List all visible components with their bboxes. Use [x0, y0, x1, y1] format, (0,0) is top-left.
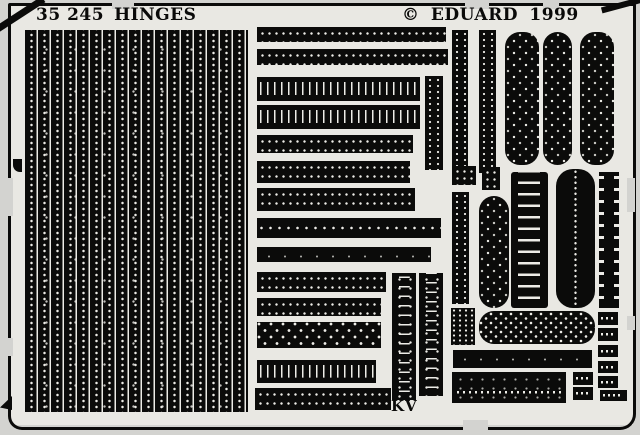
etched-part-rectdash — [598, 312, 618, 325]
etched-part-vdots — [452, 192, 469, 304]
etched-part-solid — [257, 247, 431, 262]
edge-tab-bottom-left — [0, 396, 12, 410]
etched-part-rects — [482, 167, 500, 190]
etched-part-rectdash — [598, 361, 618, 373]
sheet-name: HINGES — [114, 5, 196, 25]
etched-part-pillv — [543, 32, 572, 165]
etched-part-solid — [453, 350, 592, 368]
etched-part-ladder — [511, 172, 548, 308]
etched-part-rectdash — [573, 372, 593, 385]
etched-part-vblock — [25, 30, 248, 412]
border-gap — [627, 316, 635, 330]
etched-part-vdots — [479, 30, 496, 173]
etched-part-rectdash — [573, 387, 593, 400]
etched-part-pillvline — [556, 169, 595, 308]
etched-part-dots2 — [257, 135, 413, 153]
etched-part-dots2 — [255, 388, 391, 410]
etched-part-vdash — [257, 105, 420, 129]
etched-part-rectdash — [600, 390, 627, 401]
etched-part-vseg — [419, 273, 443, 396]
etched-part-dots1 — [257, 218, 441, 238]
etched-part-dots2 — [257, 49, 448, 65]
etched-part-pillv — [505, 32, 539, 165]
sheet-title: 35 245HINGES — [36, 5, 196, 25]
etched-part-vdots — [425, 76, 443, 170]
etched-part-pillv — [580, 32, 614, 165]
etched-part-dots2 — [257, 272, 386, 292]
etched-part-vseg — [392, 273, 416, 400]
edge-hook-left — [13, 159, 22, 172]
etched-part-dots2 — [257, 298, 381, 316]
photo-etch-sheet-scan: 35 245HINGES © EDUARD 1999 KV — [0, 0, 640, 435]
etched-part-rectdash — [598, 328, 618, 341]
etched-part-vdots — [452, 30, 468, 173]
etched-part-slab — [452, 372, 566, 403]
copyright-text: © EDUARD 1999 — [402, 5, 579, 25]
etched-part-pillh — [479, 311, 595, 344]
etched-part-rectdash — [598, 376, 618, 388]
etched-part-rects — [452, 166, 476, 185]
border-gap — [5, 338, 13, 356]
etched-part-dots2 — [257, 161, 410, 183]
etched-part-vdash — [257, 77, 420, 101]
etched-part-diamond — [257, 322, 381, 348]
etched-part-pillv — [479, 196, 509, 308]
etched-part-vdots2 — [451, 308, 475, 345]
etched-part-rectdash — [598, 345, 618, 357]
border-gap — [5, 178, 13, 216]
etched-part-vdash — [257, 360, 376, 383]
border-gap — [627, 178, 635, 212]
etched-part-notch — [599, 172, 619, 308]
border-gap — [463, 420, 488, 432]
etched-part-dots2 — [257, 27, 446, 42]
etched-part-dots2 — [257, 188, 415, 211]
catalog-number: 35 245 — [36, 5, 104, 25]
